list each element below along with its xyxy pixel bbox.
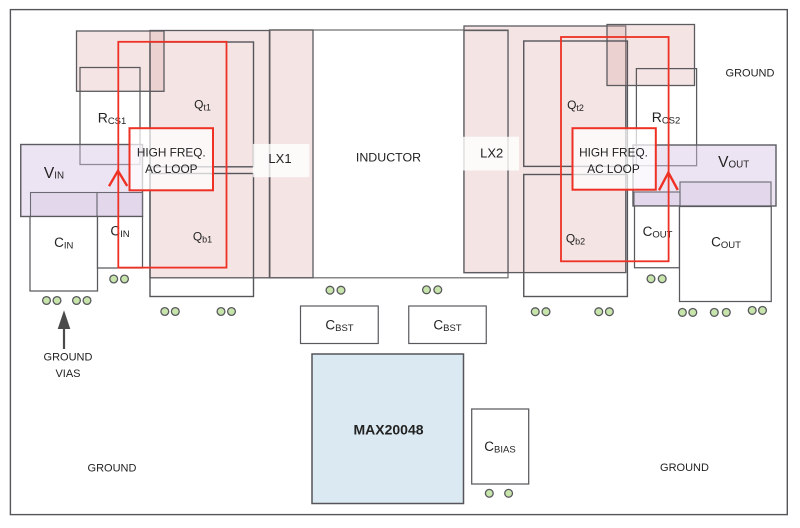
svg-text:GROUND: GROUND: [88, 463, 137, 475]
svg-text:AC LOOP: AC LOOP: [587, 162, 640, 176]
svg-text:GROUND: GROUND: [726, 68, 775, 80]
svg-text:GROUND: GROUND: [660, 462, 709, 474]
svg-text:MAX20048: MAX20048: [353, 421, 423, 437]
svg-text:VIAS: VIAS: [55, 368, 80, 380]
svg-text:LX2: LX2: [480, 146, 503, 161]
svg-text:GROUND: GROUND: [44, 352, 93, 364]
svg-text:HIGH FREQ.: HIGH FREQ.: [137, 145, 206, 159]
svg-text:RCS1: RCS1: [98, 110, 127, 128]
svg-text:AC LOOP: AC LOOP: [145, 162, 198, 176]
svg-text:HIGH FREQ.: HIGH FREQ.: [579, 145, 648, 159]
svg-text:LX1: LX1: [268, 151, 291, 166]
svg-text:RCS2: RCS2: [652, 109, 681, 127]
svg-text:INDUCTOR: INDUCTOR: [356, 151, 421, 165]
